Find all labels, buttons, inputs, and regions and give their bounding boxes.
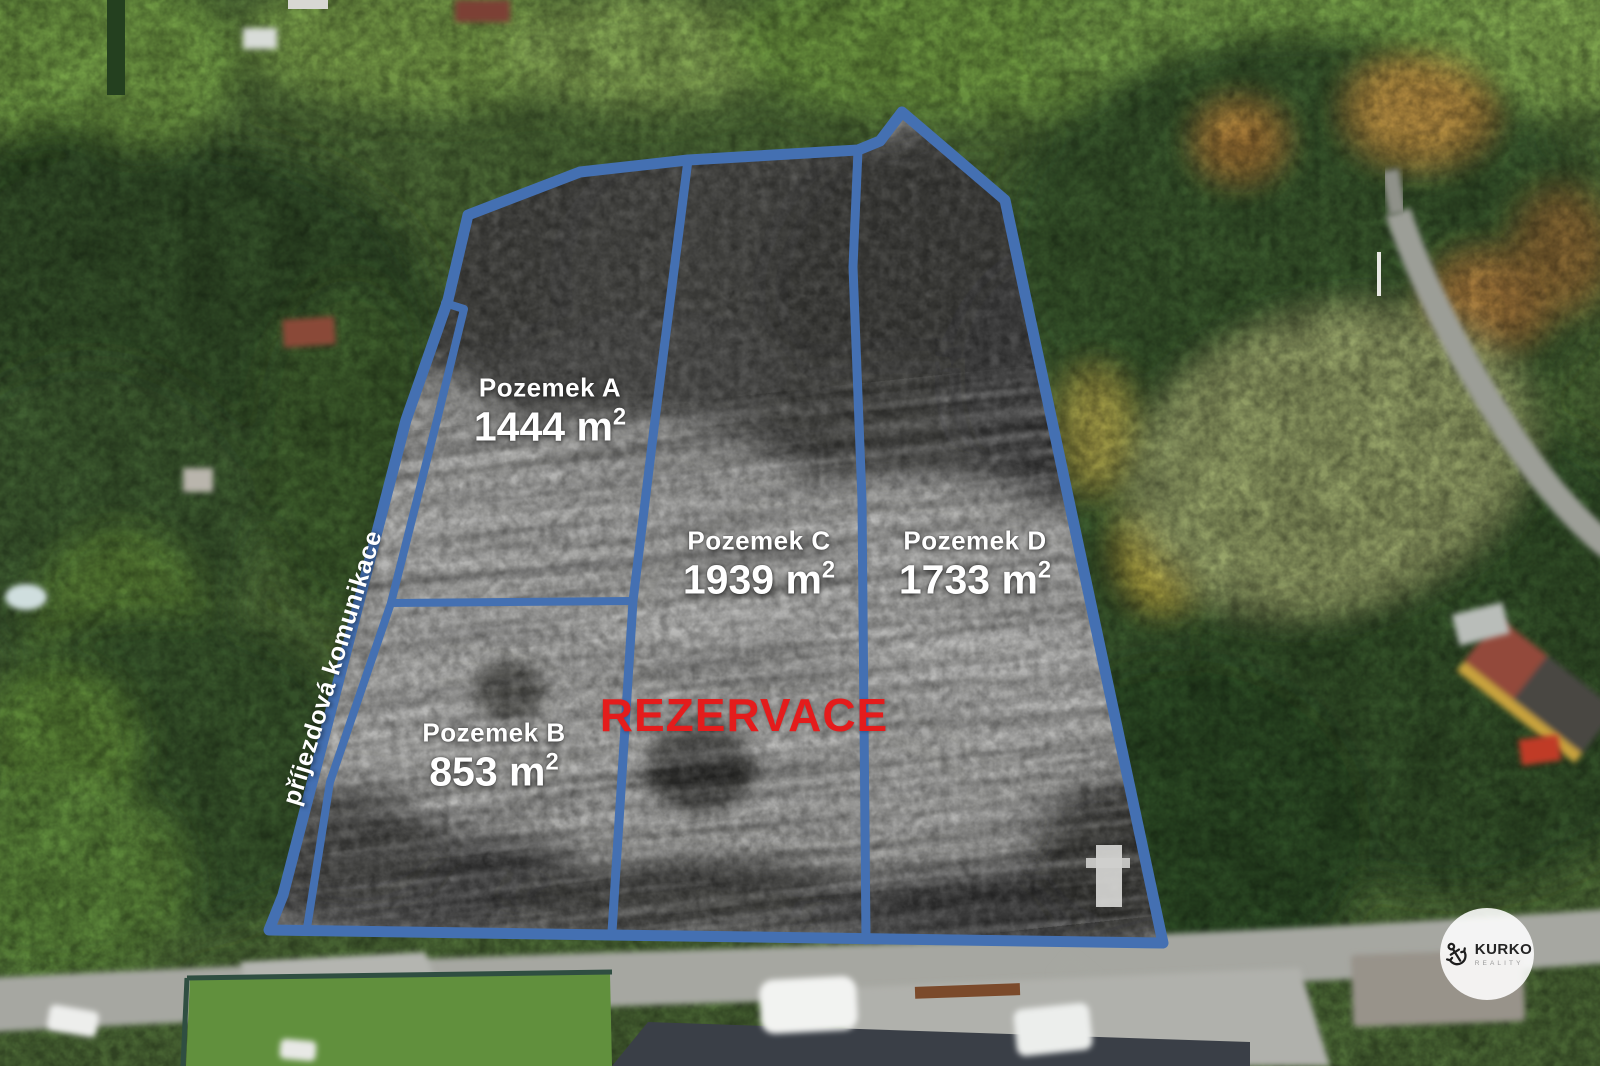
parcel-b-name: Pozemek B <box>422 718 565 746</box>
parcel-b-label: Pozemek B 853 m2 <box>422 718 565 793</box>
parcel-b-area: 853 m2 <box>422 749 565 793</box>
parcel-d-name: Pozemek D <box>899 526 1051 554</box>
logo-brand-text: KURKO <box>1475 941 1533 958</box>
parcel-a-area: 1444 m2 <box>474 404 626 448</box>
parcel-b-top-divider <box>391 601 633 603</box>
logo-text: KURKO REALITY <box>1475 941 1533 967</box>
reservation-label: REZERVACE <box>600 688 888 742</box>
aerial-photo-scene: Pozemek A 1444 m2 Pozemek B 853 m2 Pozem… <box>0 0 1600 1066</box>
anchor-icon <box>1435 933 1476 975</box>
kurko-logo: KURKO REALITY <box>1440 908 1534 1000</box>
parcel-c-area: 1939 m2 <box>683 557 835 601</box>
parcel-a-label: Pozemek A 1444 m2 <box>474 373 626 448</box>
parcel-d-label: Pozemek D 1733 m2 <box>899 526 1051 601</box>
parcel-a-name: Pozemek A <box>474 373 626 401</box>
parcel-c-name: Pozemek C <box>683 526 835 554</box>
parcel-d-area: 1733 m2 <box>899 557 1051 601</box>
logo-subtitle-text: REALITY <box>1475 960 1524 967</box>
parcel-c-label: Pozemek C 1939 m2 <box>683 526 835 601</box>
